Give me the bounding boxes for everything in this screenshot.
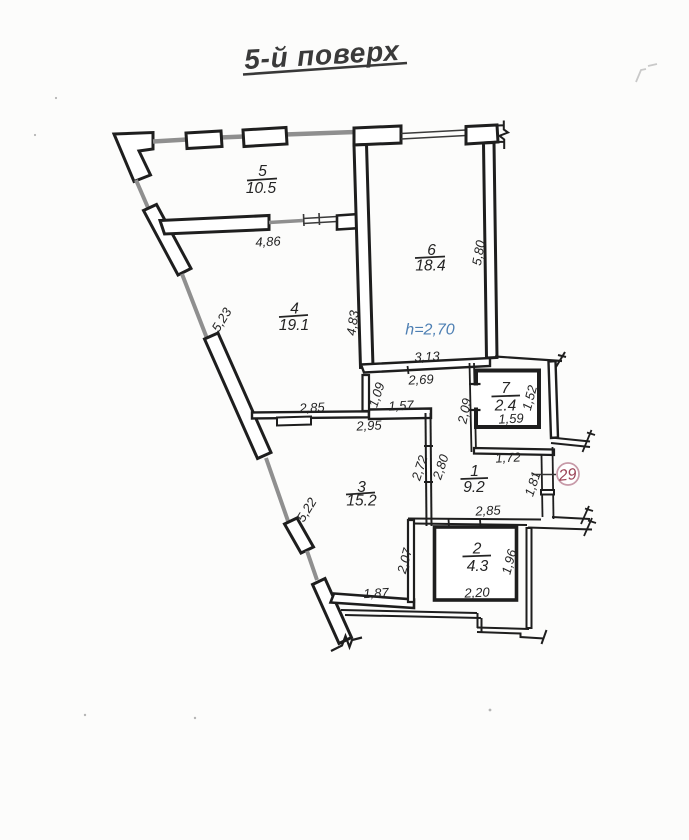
svg-text:10.5: 10.5 — [246, 180, 277, 197]
svg-text:15.2: 15.2 — [346, 493, 377, 510]
svg-text:4.3: 4.3 — [467, 558, 489, 575]
svg-text:2,85: 2,85 — [474, 502, 502, 518]
svg-text:29: 29 — [557, 466, 578, 485]
svg-text:3,13: 3,13 — [414, 348, 441, 364]
svg-text:4,86: 4,86 — [255, 233, 282, 249]
svg-text:1: 1 — [470, 463, 479, 480]
svg-text:7: 7 — [501, 380, 511, 397]
svg-text:1,72: 1,72 — [495, 449, 522, 465]
svg-text:9.2: 9.2 — [463, 479, 485, 496]
svg-text:2,85: 2,85 — [298, 399, 326, 415]
svg-text:18.4: 18.4 — [415, 258, 446, 275]
svg-text:19.1: 19.1 — [279, 317, 309, 334]
svg-text:1,87: 1,87 — [363, 585, 390, 601]
svg-text:1,57: 1,57 — [388, 397, 415, 413]
svg-text:2,95: 2,95 — [355, 417, 383, 433]
svg-text:2,20: 2,20 — [463, 584, 491, 600]
svg-text:1,59: 1,59 — [498, 410, 524, 426]
svg-text:2,69: 2,69 — [407, 371, 434, 387]
svg-text:5: 5 — [258, 163, 267, 180]
svg-text:2: 2 — [472, 541, 482, 558]
svg-text:h=2,70: h=2,70 — [405, 322, 454, 339]
